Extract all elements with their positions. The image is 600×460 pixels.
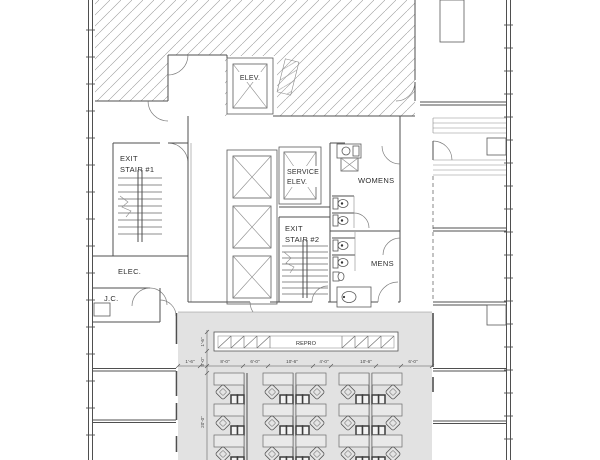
exit-stair-2-label-line2: STAIR #2 [285,235,319,244]
open-office-area: REPRO 1'-6" 8'-0" 6'-0" 10'-6" 4'-0" [176,312,434,460]
exit-stair-1-label-line1: EXIT [120,154,138,163]
elevator-shaft-2 [233,206,271,248]
repro-counter: REPRO [214,332,398,351]
dim-h-7: 6'-0" [408,359,418,364]
restrooms: WOMENS MENS [330,116,400,307]
casework-upper [433,118,506,133]
womens-room: WOMENS [332,176,394,228]
exterior-wall-left [86,0,95,460]
toilet [333,215,348,226]
mens-room: MENS [332,232,400,307]
stair-1-treads [118,178,162,234]
elevator-top: ELEV. [227,58,273,114]
dim-h-5: 4'-0" [319,359,329,364]
window-mullions-right [504,25,513,439]
dim-h-1: 1'-6" [185,359,195,364]
door-arc [168,55,188,75]
toilet [333,198,348,209]
elevator-bank [227,150,277,304]
lavatory-counter [337,287,371,307]
door-arc [132,288,150,306]
toilet [333,257,348,268]
dim-v-3: 20'-0" [200,416,205,428]
elevator-shaft-3 [233,256,271,298]
exterior-wall-right [504,0,513,460]
door-arc [160,300,176,316]
exit-stair-2: EXIT STAIR #2 [279,217,328,302]
service-elev-label-line1: SERVICE [287,169,319,176]
floor-plan-sheet: ELEV. EXIT STAIR #1 ELEC. J.C. [0,0,600,460]
dim-h-6: 10'-6" [360,359,372,364]
door-arc [383,238,400,255]
dim-v-1: 1'-6" [200,337,205,347]
floor-plan-drawing: ELEV. EXIT STAIR #1 ELEC. J.C. [0,0,600,460]
service-elevator: SERVICE ELEV. [279,147,330,217]
service-elev-label-line2: ELEV. [287,179,307,186]
door-arc [433,141,452,160]
urinal [333,272,344,281]
elevator-label: ELEV. [240,75,260,82]
window-mullions-left [86,30,95,435]
exit-stair-2-label-line1: EXIT [285,224,303,233]
stair-2-treads [282,246,328,294]
repro-label: REPRO [296,341,317,347]
dim-h-2: 8'-0" [220,359,230,364]
casework-lower [433,160,506,175]
jc-label: J.C. [104,294,119,303]
left-wing [93,313,177,452]
floor-sink [341,158,358,171]
door-arc [148,101,168,121]
mens-label: MENS [371,259,394,268]
mop-sink [94,303,110,316]
elevator-shaft-1 [233,156,271,198]
closet-top-right [440,0,464,42]
closet-lower-right [487,305,506,325]
door-arc [378,282,398,302]
door-arc [150,288,167,305]
right-wing [420,0,506,424]
dim-h-4: 10'-6" [286,359,298,364]
toilet [333,240,348,251]
closet-mid-right [487,138,506,155]
elec-label: ELEC. [118,267,141,276]
dim-v-2: 5'-0" [200,357,205,367]
exit-stair-1-label-line2: STAIR #1 [120,165,154,174]
jc-room: J.C. [93,288,176,322]
womens-label: WOMENS [358,176,394,185]
door-arc [354,213,369,228]
drinking-fountain [337,144,361,158]
dim-h-3: 6'-0" [250,359,260,364]
door-arc [382,146,400,164]
